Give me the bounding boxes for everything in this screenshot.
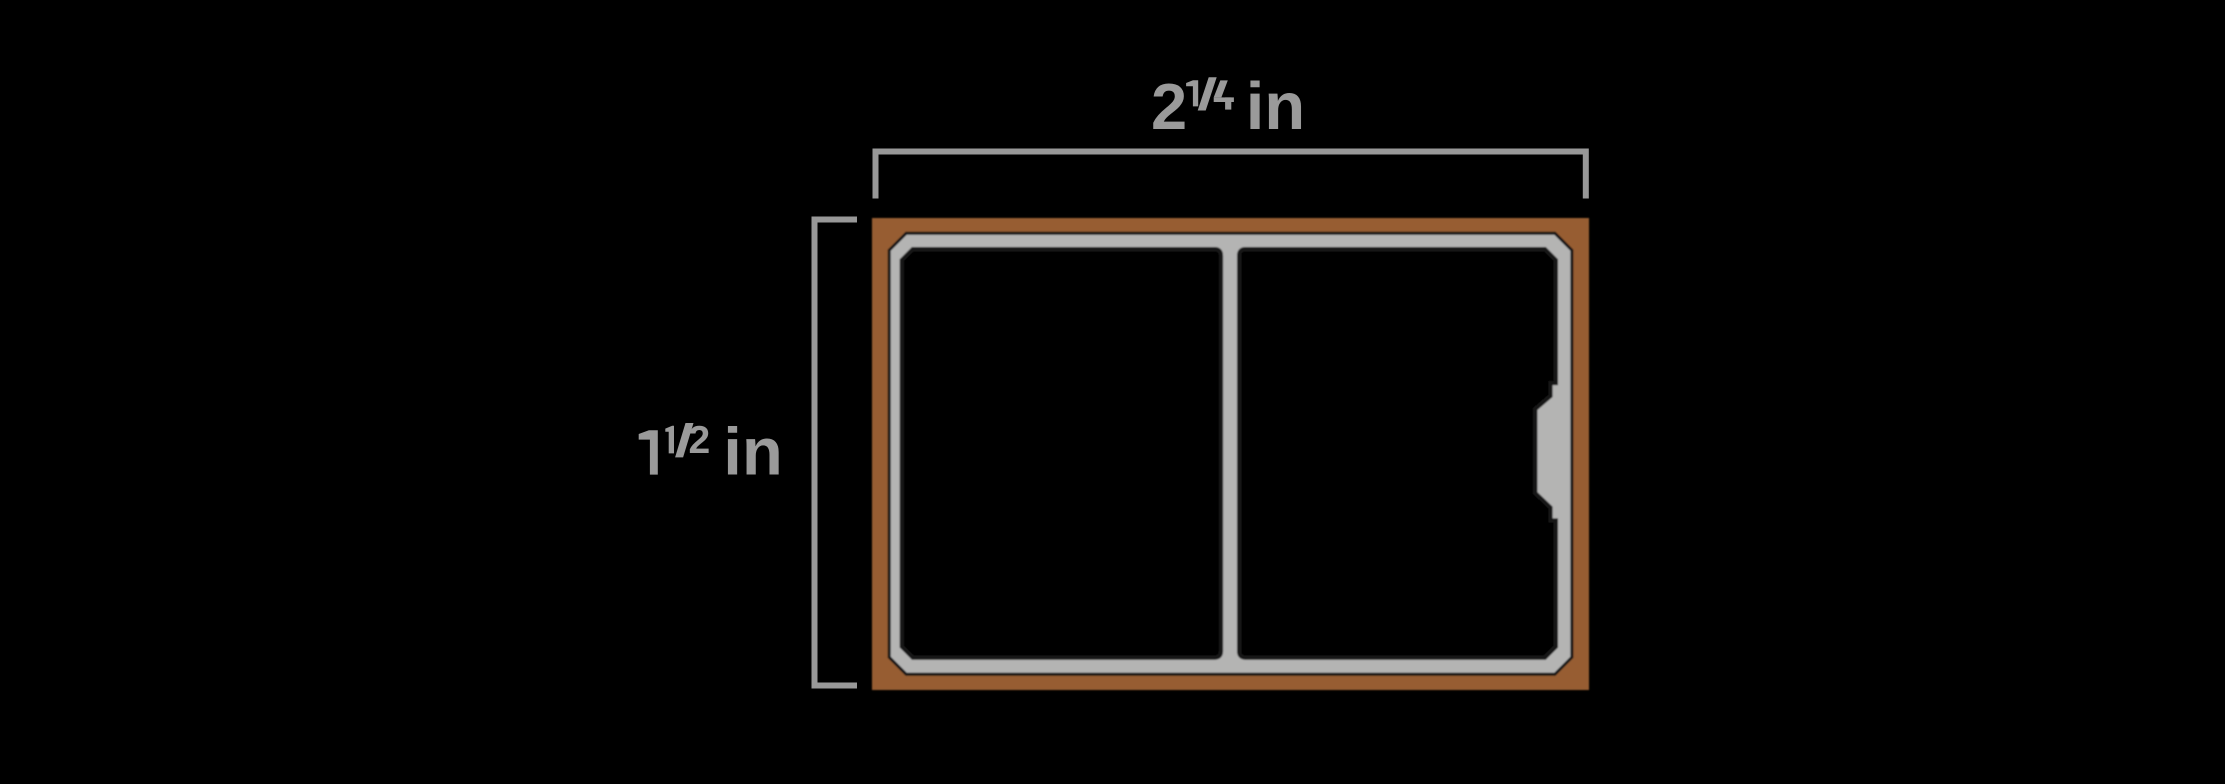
- svg-text:in: in: [1246, 69, 1306, 144]
- svg-text:2: 2: [1151, 70, 1187, 143]
- svg-text:in: in: [723, 415, 783, 490]
- svg-text:2: 2: [689, 419, 711, 462]
